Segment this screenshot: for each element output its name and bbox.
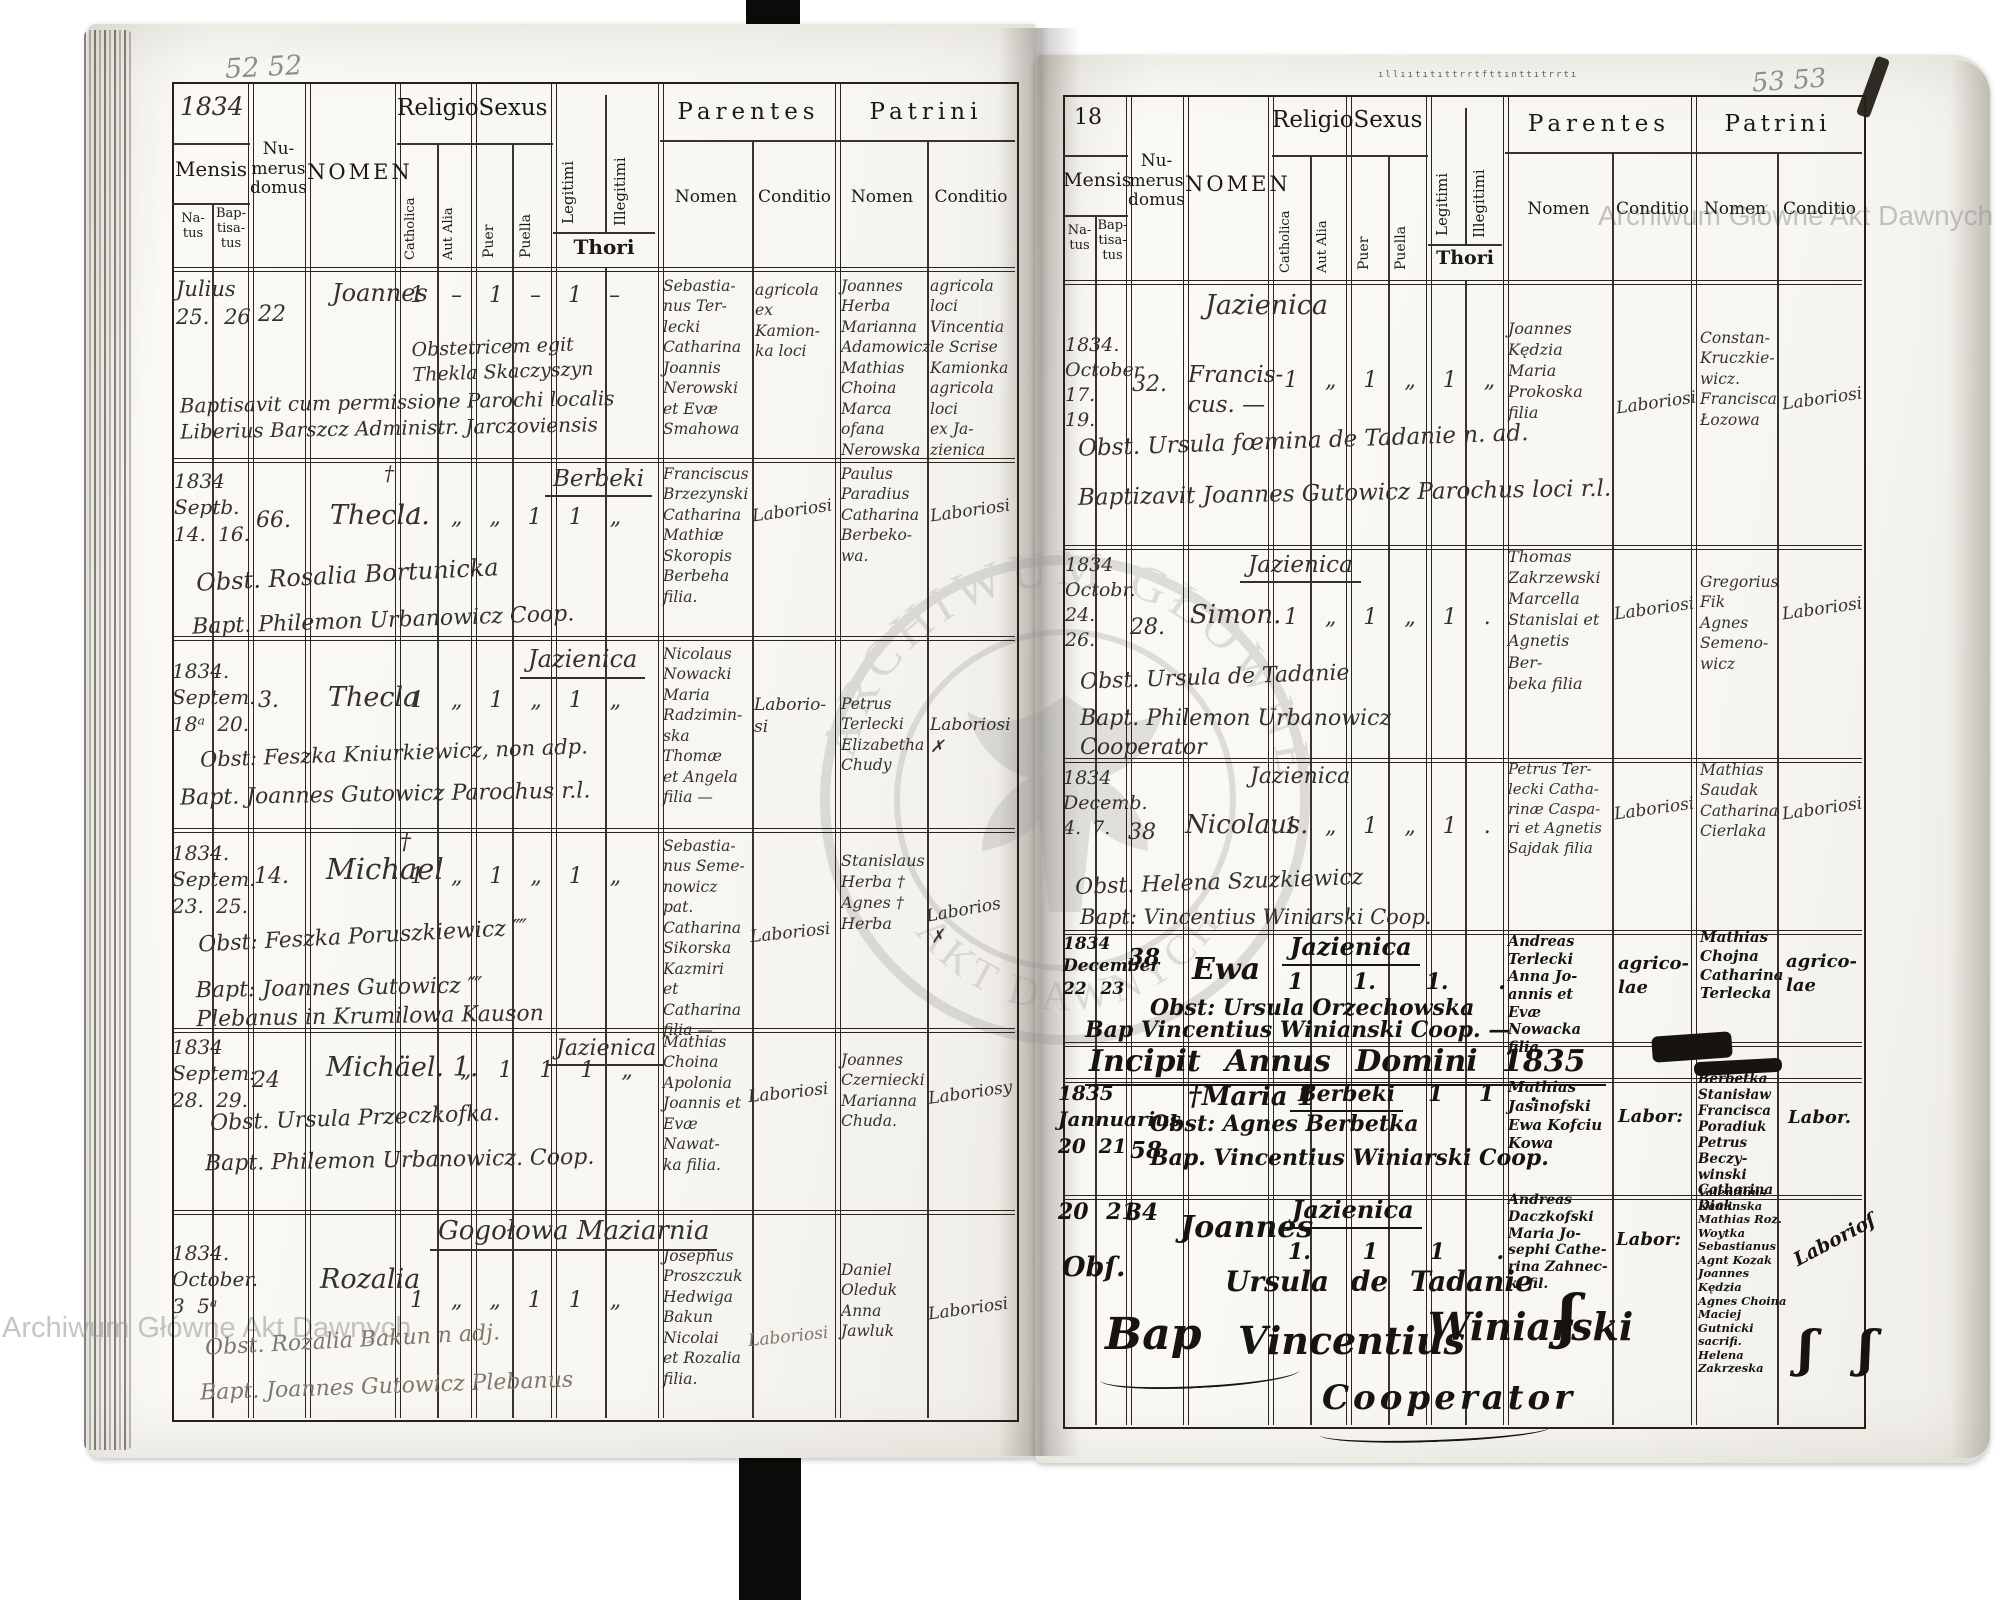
grid-line: [172, 828, 1015, 833]
entry-house-number: 22: [258, 300, 286, 329]
entry-godparents-condition: agricola loci Vincentia le Scrise Kamion…: [930, 276, 1014, 460]
grid-line: [1505, 152, 1862, 154]
grid-line: [172, 143, 250, 145]
entry-marks: 1 – 1 – 1 –: [410, 281, 620, 310]
grid-line: [927, 140, 929, 1418]
entry-name: Francis- cus. —: [1188, 360, 1270, 421]
header-puella: Puella: [1393, 170, 1409, 270]
entry-baptism-note: Bap. Vincentius Winiarski Coop.: [1150, 1144, 1549, 1173]
entry-place: Jazienica: [1284, 1194, 1422, 1229]
entry-obstetrix-name: Ursula de Tadanie: [1225, 1264, 1533, 1301]
header-puer: Puer: [481, 158, 497, 258]
entry-obstetrix-label: Obſ.: [1062, 1250, 1125, 1286]
entry-place: Jazienica: [1282, 931, 1420, 966]
header-legitimi: Legitimi: [560, 102, 577, 224]
header-catholica: Catholica: [404, 152, 419, 260]
entry-parents-name: Joannes Kędzia Maria Prokoska filia: [1508, 318, 1608, 424]
grid-line: [553, 232, 655, 234]
entry-parents-condition: Laborio- si: [754, 694, 836, 739]
entry-date: 1834. October 17. 19.: [1065, 333, 1127, 433]
entry-date: 1834 Octobr. 24. 26.: [1065, 553, 1127, 653]
entry-godparents-condition: Labor.: [1788, 1106, 1851, 1130]
ink-blot: [1651, 1031, 1733, 1063]
header-catholica: Catholica: [1279, 165, 1294, 273]
grid-line: [172, 203, 250, 205]
header-natus: Na- tus: [1063, 224, 1096, 254]
grid-line: [1612, 152, 1614, 1425]
entry-house-number: 66.: [256, 506, 291, 535]
entry-baptism-note: Bap Vincentius Winianski Coop. —: [1085, 1016, 1510, 1045]
entry-parents-name: Mathias Choina Apolonia Joannis et Evæ N…: [663, 1032, 751, 1175]
entry-date: 1834 December 22 23: [1063, 933, 1127, 1000]
entry-marks: 1 „ 1 „ 1 „: [1284, 366, 1495, 395]
entry-name: Simon.: [1190, 598, 1281, 632]
header-religio: Religio: [1272, 107, 1348, 133]
grid-line: [605, 95, 607, 232]
header-parentes: Parentes: [660, 99, 837, 125]
entry-parents-name: Josephus Proszczuk Hedwiga Bakun Nicolai…: [663, 1246, 751, 1389]
entry-baptism-note: Bapt: Vincentius Winiarski Coop.: [1080, 904, 1432, 932]
header-parentes-conditio: Conditio: [1612, 200, 1693, 220]
entry-baptism-note: Baptisavit cum permissione Parochi local…: [180, 383, 711, 445]
entry-date: 1834. Septem. 18ᵃ 20.: [172, 658, 256, 737]
header-patrini: Patrini: [1693, 111, 1862, 137]
header-baptisatus: Bap- tisa- tus: [1096, 219, 1129, 264]
header-nomen: NOMEN: [1185, 172, 1270, 196]
entry-parents-name: Andreas Terlecki Anna Jo- annis et Evæ N…: [1508, 933, 1610, 1057]
entry-marks: 1 „ „ 1 1 „: [410, 503, 621, 532]
entry-house-number: 38: [1128, 943, 1160, 973]
entry-marks: 1 „ 1 „ 1 .: [1284, 603, 1491, 632]
entry-date: 1834. October. 3 5ᵃ: [172, 1240, 258, 1319]
header-aut-alia: Aut Alia: [1316, 165, 1331, 273]
entry-name: Thecla: [328, 680, 419, 716]
entry-marks: 1. 1 1 .: [1288, 1238, 1504, 1267]
header-patrini: Patrini: [837, 99, 1015, 125]
header-puer: Puer: [1356, 170, 1372, 270]
entry-parents-name: Mathias Jasinofski Ewa Kofciu Kowa: [1508, 1078, 1610, 1153]
header-parentes-conditio: Conditio: [752, 188, 837, 208]
grid-line: [397, 143, 553, 145]
left-page-number-pencil: 52 52: [224, 50, 303, 85]
left-page-edge-stack: [84, 30, 132, 1450]
entry-marks: 1 „ 1 „ 1 „: [410, 686, 621, 715]
right-year-printed: 18: [1074, 105, 1114, 130]
grid-line: [752, 140, 754, 1418]
header-parentes-nomen: Nomen: [1505, 200, 1612, 220]
entry-date: 1834. Septem. 23. 25.: [172, 840, 256, 919]
closing-bap: Bap: [1105, 1306, 1201, 1364]
entry-place: Jazienica: [1250, 762, 1350, 791]
entry-date: 1834 Septem: 28. 29.: [172, 1034, 256, 1113]
entry-name: Ewa: [1192, 950, 1260, 990]
header-numerus-domus: Nu- merus domus: [1128, 152, 1185, 211]
entry-house-number: 34: [1126, 1198, 1158, 1228]
header-illegitimi: Illegitimi: [1471, 112, 1488, 238]
entry-godparents-condition: agrico- lae: [1786, 950, 1857, 998]
entry-parents-condition: Labor:: [1616, 1228, 1681, 1252]
entry-godparents-name: Mathias Saudak Catharina Cierlaka: [1700, 760, 1776, 842]
entry-parents-name: Franciscus Brzezynski Catharina Mathiæ S…: [663, 464, 751, 607]
entry-godparents-name: Stanislaus Herba † Agnes † Herba: [841, 850, 927, 934]
header-mensis: Mensis: [172, 158, 250, 181]
entry-marks: 1 „ 1 „ 1 .: [1284, 812, 1491, 841]
closing-winiarski: Winiarski: [1428, 1302, 1633, 1352]
entry-house-number: 32.: [1132, 370, 1167, 399]
header-patrini-nomen: Nomen: [837, 188, 927, 208]
grid-line: [660, 140, 1015, 142]
header-sexus: Sexus: [473, 95, 553, 121]
entry-godparents-name: Paulus Paradius Catharina Berbeko- wa.: [841, 464, 927, 566]
entry-name: Michäel. 1.: [326, 1050, 478, 1086]
entry-parents-name: Thomas Zakrzewski Marcella Stanislai et …: [1508, 546, 1608, 694]
entry-parents-condition: agrico- lae: [1618, 952, 1689, 1000]
entry-place: Berbeki: [545, 464, 652, 497]
entry-house-number: 28.: [1130, 613, 1165, 642]
entry-place: Berbeki: [1290, 1080, 1403, 1112]
header-illegitimi: Illegitimi: [612, 100, 629, 226]
header-nomen: NOMEN: [307, 160, 397, 184]
entry-name: Rozalia: [320, 1262, 420, 1298]
header-aut-alia: Aut Alia: [442, 152, 457, 260]
entry-godparents-name: Joannes Czerniecki Marianna Chuda.: [841, 1050, 927, 1132]
grid-line: [1063, 545, 1862, 550]
grid-line: [172, 267, 1015, 272]
header-numerus-domus: Nu- merus domus: [250, 140, 307, 199]
grid-line: [1465, 108, 1467, 244]
entry-parents-condition: Labor:: [1618, 1105, 1683, 1129]
entry-godparents-name: Daniel Oleduk Anna Jawluk: [841, 1260, 927, 1342]
closing-flourish-pair: ʃ ʃ: [1798, 1316, 1875, 1382]
header-baptisatus: Bap- tisa- tus: [212, 207, 250, 252]
entry-marks: „ 1 1 1 „: [460, 1056, 633, 1085]
closing-flourish: ʃ: [1558, 1278, 1577, 1355]
header-legitimi: Legitimi: [1434, 114, 1451, 236]
entry-godparents-name: Petrus Terlecki Elizabetha Chudy: [841, 694, 927, 776]
right-page-edge-shade: [1950, 60, 1990, 1458]
header-puella: Puella: [518, 158, 534, 258]
entry-godparents-condition: Laboriosi ✗: [930, 714, 1014, 759]
header-sexus: Sexus: [1348, 107, 1428, 133]
grid-line: [1388, 155, 1390, 1425]
header-mensis: Mensis: [1063, 170, 1128, 192]
header-patrini-conditio: Conditio: [1777, 200, 1862, 220]
binding-strap-bottom: [739, 1447, 801, 1600]
grid-line: [1063, 155, 1128, 157]
entry-parents-name: Petrus Ter- lecki Catha- rinæ Caspa- ri …: [1508, 760, 1608, 859]
entry-parents-name: Nicolaus Nowacki Maria Radzimin- ska Tho…: [663, 644, 751, 808]
header-thori: Thori: [1428, 248, 1502, 270]
grid-line: [1063, 280, 1862, 285]
entry-godparents-name: Valentinus Kaminska Mathias Roz. Woytka …: [1698, 1186, 1794, 1376]
grid-line: [1272, 155, 1428, 157]
grid-line: [1063, 215, 1128, 217]
right-page-number-pencil: 53 53: [1751, 63, 1827, 98]
entry-baptism-note: Bapt. Philemon Urbanowicz Cooperator: [1080, 704, 1560, 762]
entry-marks: 1 1. 1. .: [1288, 968, 1506, 997]
closing-cooperator: Cooperator: [1322, 1376, 1576, 1421]
entry-place: Jazienica: [1205, 288, 1328, 324]
header-religio: Religio: [397, 95, 473, 121]
entry-place: Jazienica: [1240, 550, 1361, 583]
header-parentes: Parentes: [1505, 111, 1693, 137]
entry-obstetrix-note: Obst: Agnes Berbetka: [1150, 1110, 1419, 1139]
header-patrini-nomen: Nomen: [1693, 200, 1777, 220]
entry-house-number: 24: [252, 1066, 280, 1095]
entry-godparents-name: Mathias Chojna Catharina Terlecka: [1700, 928, 1776, 1003]
entry-godparents-name: Constan- Kruczkie- wicz. Francisca Łozow…: [1700, 328, 1776, 430]
header-patrini-conditio: Conditio: [927, 188, 1015, 208]
grid-line: [1428, 244, 1502, 246]
entry-date: 1834 Decemb. 4. 7.: [1063, 766, 1125, 841]
entry-marks: 1 „ 1 „ 1 „: [410, 862, 621, 891]
header-natus: Na- tus: [174, 212, 212, 242]
entry-baptism-note: Bapt: Joannes Gutowicz ⁗ Plebanus in Kru…: [196, 968, 677, 1034]
entry-house-number: 14.: [254, 862, 289, 891]
inventory-stamp-text: ıllııtıtıttrrtfttınttıtrrtı: [1378, 70, 1578, 80]
entry-date: Julius 25. 26: [176, 276, 251, 331]
entry-godparents-name: Gregorius Fik Agnes Semeno- wicz: [1700, 572, 1776, 674]
entry-date: 1835 Jannuarius 20 21: [1058, 1080, 1128, 1159]
header-parentes-nomen: Nomen: [660, 188, 752, 208]
entry-house-number: 38: [1128, 818, 1156, 847]
entry-date: 1834 Septb. 14. 16.: [174, 468, 250, 547]
entry-parents-name: Sebastia- nus Seme- nowicz pat. Catharin…: [663, 836, 751, 1041]
entry-parents-name: Sebastia- nus Ter- lecki Catharina Joann…: [663, 276, 751, 440]
header-thori: Thori: [553, 236, 655, 259]
entry-parents-condition: agricola ex Kamion- ka loci: [755, 280, 835, 362]
entry-marks: 1 „ „ 1 1 „: [410, 1286, 621, 1315]
entry-obstetrix-note: Obstetricem egit Thekla Skaczyszyn: [411, 332, 594, 388]
left-year-handwritten: 1834: [180, 90, 244, 123]
entry-house-number: 3.: [258, 686, 279, 715]
entry-name-cross: †: [384, 460, 394, 486]
entry-godparents-name: Joannes Herba Marianna Adamowicz Mathias…: [841, 276, 927, 460]
entry-place: Jazienica: [520, 644, 645, 679]
